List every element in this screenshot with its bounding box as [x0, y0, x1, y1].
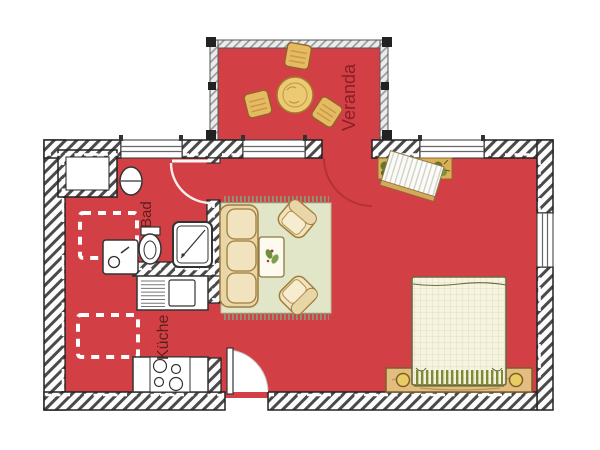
window [243, 140, 305, 158]
washing-machine [103, 240, 138, 274]
dining-table [277, 77, 313, 113]
floor-plan-drawing: Veranda [0, 0, 600, 450]
coffee-table [259, 237, 284, 277]
kitchen-label: Küche [155, 315, 172, 360]
wall-top-c [305, 140, 322, 158]
bathroom-label: Bad [138, 201, 155, 228]
rug-fringe-bottom [223, 313, 329, 320]
sofa [220, 205, 258, 307]
wall-entrance-stub [208, 358, 221, 392]
window [537, 213, 553, 267]
window [121, 140, 182, 158]
dining-chair [284, 42, 312, 70]
toilet [139, 227, 161, 264]
dining-chair [243, 89, 272, 118]
veranda-label: Veranda [339, 63, 359, 131]
closet-interior [66, 157, 109, 190]
blanket-fringe [415, 370, 503, 385]
sink-basin [169, 280, 195, 306]
stove [133, 357, 208, 392]
room-veranda: Veranda [206, 37, 392, 144]
floor-plan: Veranda [0, 0, 600, 450]
entrance-door-leaf [227, 348, 233, 394]
rug-fringe-top [223, 196, 329, 203]
veranda-door-opening [322, 138, 372, 159]
shower [173, 222, 212, 267]
bed-knob [397, 374, 410, 387]
living-area [220, 196, 331, 320]
kitchen-sink-counter [137, 276, 208, 310]
bed-knob [510, 374, 523, 387]
window [420, 140, 484, 158]
